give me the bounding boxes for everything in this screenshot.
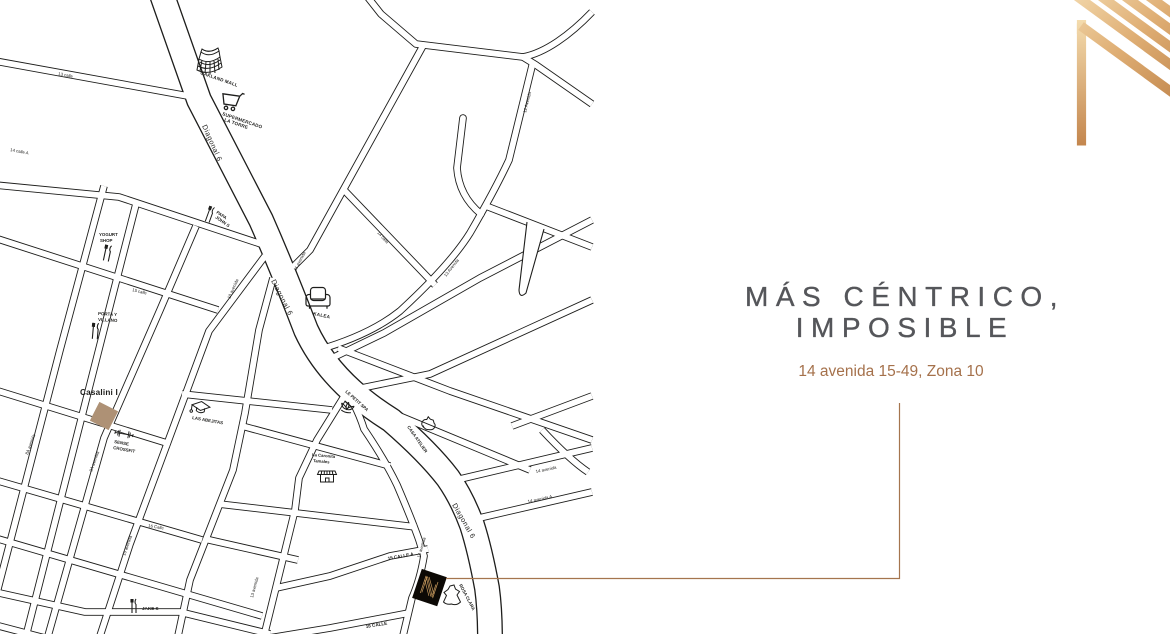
svg-text:VILLANO: VILLANO <box>98 317 118 323</box>
svg-text:KALEA: KALEA <box>313 311 331 320</box>
svg-text:PORTA Y: PORTA Y <box>98 311 117 317</box>
svg-text:13 avenida: 13 avenida <box>249 576 259 598</box>
svg-text:YOGURT: YOGURT <box>99 232 118 237</box>
svg-text:14 calle A: 14 calle A <box>10 147 29 155</box>
svg-text:SHOP: SHOP <box>100 238 113 243</box>
svg-text:JAKE S: JAKE S <box>142 606 159 611</box>
svg-text:LAS ABEJITAS: LAS ABEJITAS <box>192 415 224 425</box>
svg-text:CROSSFIT: CROSSFIT <box>113 445 136 454</box>
svg-text:Casalini I: Casalini I <box>80 388 118 397</box>
svg-text:14 avenida: 14 avenida <box>535 465 557 474</box>
svg-text:Tamales: Tamales <box>313 458 330 464</box>
